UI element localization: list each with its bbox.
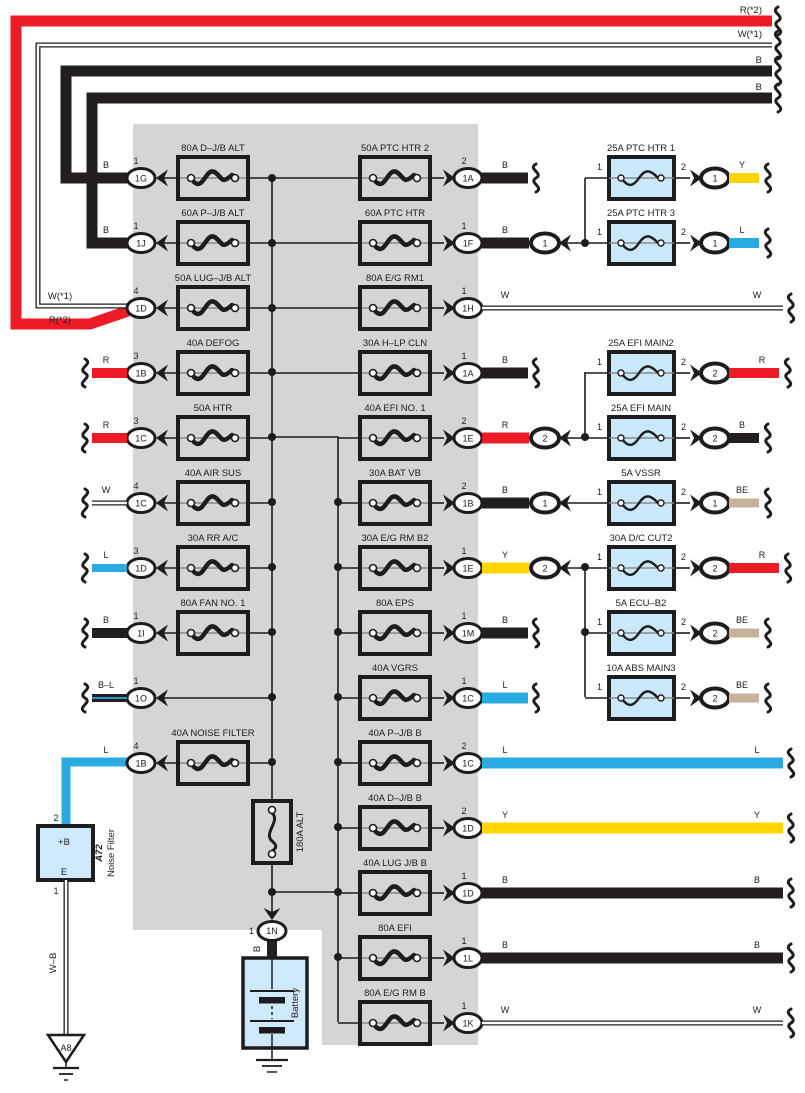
connector-code: 1	[712, 238, 717, 248]
pin-number: 1	[597, 422, 602, 432]
pin-number: 1	[133, 611, 138, 621]
wire-color-label: B	[103, 160, 109, 170]
continuation-brace-icon	[788, 879, 793, 907]
fuse-label: 40A AIR SUS	[185, 468, 242, 479]
continuation-brace-icon	[82, 684, 87, 712]
continuation-brace-icon	[775, 57, 780, 85]
wire-color-label: W(*1)	[48, 291, 72, 302]
fuse-label: 25A EFI MAIN2	[608, 338, 673, 349]
connector-code: 2	[712, 433, 717, 443]
fuse-label: 50A LUG–J/B ALT	[175, 273, 252, 284]
wire-color-label: W–B	[48, 953, 59, 974]
wire-color-label: B	[502, 160, 508, 170]
junction-dot	[268, 304, 276, 312]
connector-code: 1B	[135, 758, 146, 768]
connector-code: 1E	[462, 433, 473, 443]
connector-code: 1A	[462, 368, 473, 378]
right-fuse-6: 15A ECU–B222BE	[585, 598, 771, 654]
connector-code: 1B	[135, 368, 146, 378]
wire-color-label: B	[756, 55, 762, 66]
wire-color-label: W	[753, 290, 762, 300]
pin-number: 1	[597, 162, 602, 172]
junction-dot	[334, 823, 342, 831]
continuation-brace-icon	[765, 229, 770, 257]
wire-color-label: BE	[736, 485, 748, 495]
pin-number: 2	[681, 162, 686, 172]
continuation-brace-icon	[82, 359, 87, 387]
noise-filter-group: 2 +B E 1 A72 Noise Filter W–B A8	[38, 762, 128, 1080]
wire-color-label: W	[753, 1005, 762, 1015]
right-fuse-rows: 125A PTC HTR 121Y125A PTC HTR 321L125A E…	[585, 143, 791, 719]
junction-dot	[268, 368, 276, 376]
connector-code: 2	[712, 628, 717, 638]
continuation-brace-icon	[82, 554, 87, 582]
continuation-brace-icon	[785, 359, 790, 387]
continuation-brace-icon	[765, 424, 770, 452]
pin-number: 1	[461, 611, 466, 621]
wire-color-label: R(*2)	[740, 5, 762, 16]
wire-color-label: R	[103, 355, 110, 365]
terminal-label: E	[61, 867, 67, 878]
wire-color-label: B	[502, 225, 508, 235]
wire-color-label: B	[739, 420, 745, 430]
wire-color-label: R	[759, 355, 766, 365]
continuation-brace-icon	[533, 359, 538, 387]
right-fuse-0: 125A PTC HTR 121Y	[585, 143, 771, 199]
continuation-brace-icon	[533, 684, 538, 712]
fusible-link-icon	[609, 547, 674, 589]
junction-dot	[334, 888, 342, 896]
connector-code: 2	[712, 368, 717, 378]
connector-code: 2	[712, 693, 717, 703]
junction-dot	[268, 628, 276, 636]
wire-color-label: L	[739, 225, 744, 235]
right-fuse-3: 125A EFI MAIN22B	[585, 403, 771, 459]
wire-color-label: BE	[736, 680, 748, 690]
fuse-label: 40A VGRS	[372, 663, 418, 674]
wire-color-label: BE	[736, 615, 748, 625]
fusible-link-icon	[609, 157, 674, 199]
wire-color-label: R	[759, 550, 766, 560]
pin-number: 3	[133, 416, 138, 426]
connector-code: 1I	[137, 628, 145, 638]
connector-code: 1O	[135, 693, 147, 703]
connector-code: 1C	[462, 758, 474, 768]
connector-code: 1H	[462, 303, 474, 313]
ground-icon	[256, 1048, 288, 1072]
continuation-brace-icon	[785, 554, 790, 582]
fuse-label: 80A FAN NO. 1	[181, 598, 246, 609]
connector-code: 1A	[462, 173, 473, 183]
pin-number: 1	[461, 221, 466, 231]
pin-number: 2	[681, 487, 686, 497]
fuse-label: 40A EFI NO. 1	[364, 403, 425, 414]
fusible-link-icon	[609, 417, 674, 459]
continuation-brace-icon	[82, 489, 87, 517]
fuse-label: 40A DEFOG	[187, 338, 240, 349]
junction-dot	[268, 239, 276, 247]
junction-dot	[268, 174, 276, 182]
pin-number: 1	[461, 546, 466, 556]
wire-color-label: L	[502, 745, 507, 755]
junction-dot	[334, 953, 342, 961]
fuse-label: 5A ECU–B2	[616, 598, 667, 609]
connector-code: 1D	[462, 823, 474, 833]
relay-block-background	[133, 124, 478, 930]
pin-number: 2	[681, 617, 686, 627]
pin-number: 1	[597, 552, 602, 562]
fuse-label: 40A P–J/B B	[368, 728, 421, 739]
fuse-label: 60A P–J/B ALT	[181, 208, 244, 219]
pin-number: 1	[461, 286, 466, 296]
wire-color-label: L	[103, 550, 108, 560]
fuse-label: 80A EPS	[376, 598, 414, 609]
battery-group: 1N 1 B Battery	[243, 908, 307, 1072]
continuation-brace-icon	[533, 164, 538, 192]
pin-number: 1	[597, 682, 602, 692]
connector-code: 2	[542, 433, 547, 443]
pin-number: 2	[461, 156, 466, 166]
continuation-brace-icon	[788, 294, 793, 322]
wire-color-label: B	[754, 940, 760, 950]
fusible-link-icon	[609, 677, 674, 719]
connector-code: 1M	[462, 628, 475, 638]
wire-color-label: B	[502, 355, 508, 365]
fuse-label: 40A LUG J/B B	[363, 858, 427, 869]
fuse-label: 25A PTC HTR 3	[607, 208, 675, 219]
pin-number: 3	[133, 546, 138, 556]
continuation-brace-icon	[82, 424, 87, 452]
fuse-label: 40A D–J/B B	[368, 793, 422, 804]
wire-color-label: W	[501, 290, 510, 300]
fuse-label: 60A PTC HTR	[365, 208, 425, 219]
junction-dot	[268, 888, 276, 896]
connector-code: 1	[542, 498, 547, 508]
continuation-brace-icon	[533, 619, 538, 647]
fusible-link-icon	[609, 222, 674, 264]
junction-dot	[334, 693, 342, 701]
pin-number: 1	[461, 351, 466, 361]
continuation-brace-icon	[788, 944, 793, 972]
connector-code: 1J	[136, 238, 146, 248]
fuse-label: 80A E/G RM B	[364, 988, 426, 999]
connector-code: 1	[712, 498, 717, 508]
continuation-brace-icon	[82, 619, 87, 647]
pin-number: 1	[597, 487, 602, 497]
continuation-brace-icon	[765, 684, 770, 712]
battery-label: Battery	[290, 988, 301, 1018]
wire-color-label: B	[252, 946, 263, 952]
fuse-label: 80A D–J/B ALT	[181, 143, 245, 154]
right-fuse-7: 110A ABS MAIN322BE	[585, 663, 771, 719]
junction-dot	[581, 239, 589, 247]
wire-color-label: Y	[739, 160, 745, 170]
pin-number: 1	[249, 926, 254, 936]
pin-number: 1	[461, 1001, 466, 1011]
connector-code: 1C	[135, 498, 147, 508]
connector-code: 1D	[462, 888, 474, 898]
fusible-link-icon	[609, 612, 674, 654]
junction-dot	[334, 758, 342, 766]
continuation-brace-icon	[765, 164, 770, 192]
pin-number: 2	[53, 813, 58, 823]
right-fuse-4: 15A VSSR21BE	[585, 468, 771, 524]
ground-code: A8	[60, 1043, 71, 1053]
wire-color-label: B	[502, 940, 508, 950]
wire-color-label: L	[502, 680, 507, 690]
fuse-label: 30A E/G RM B2	[361, 533, 428, 544]
junction-dot	[581, 563, 589, 571]
junction-dot	[334, 628, 342, 636]
pin-number: 1	[461, 676, 466, 686]
wire-color-label: B–L	[98, 680, 114, 690]
pin-number: 2	[681, 682, 686, 692]
junction-dot	[581, 628, 589, 636]
pin-number: 1	[597, 357, 602, 367]
pin-number: 2	[461, 741, 466, 751]
fuse-label: 80A E/G RM1	[366, 273, 424, 284]
continuation-brace-icon	[765, 619, 770, 647]
fuse-label: 10A ABS MAIN3	[606, 663, 675, 674]
right-fuse-2: 125A EFI MAIN222R	[585, 338, 791, 394]
component-code: A72	[94, 844, 105, 863]
fuse-label: 30A BAT VB	[369, 468, 421, 479]
pin-number: 1	[133, 156, 138, 166]
continuation-brace-icon	[788, 814, 793, 842]
pin-number: 4	[133, 481, 138, 491]
fuse-label: 30A RR A/C	[188, 533, 239, 544]
pin-number: 2	[461, 416, 466, 426]
connector-code: 1L	[463, 953, 473, 963]
continuation-brace-icon	[765, 489, 770, 517]
junction-dot	[268, 563, 276, 571]
wire-color-label: W	[102, 485, 111, 495]
pin-number: 3	[133, 351, 138, 361]
pin-number: 1	[133, 221, 138, 231]
pin-number: 1	[53, 886, 58, 896]
connector-code: 1G	[135, 173, 147, 183]
connector-code: 2	[542, 563, 547, 573]
fusible-link-icon	[609, 482, 674, 524]
connector-code: 1D	[135, 303, 147, 313]
pin-number: 4	[133, 286, 138, 296]
pin-number: 1	[133, 676, 138, 686]
connector-code: 1C	[135, 433, 147, 443]
wire-color-label: Y	[502, 550, 508, 560]
wire-color-label: B	[103, 225, 109, 235]
junction-dot	[334, 498, 342, 506]
pin-number: 2	[681, 357, 686, 367]
connector-code: 1E	[462, 563, 473, 573]
pin-number: 2	[681, 552, 686, 562]
wire-color-label: B	[502, 875, 508, 885]
wire-color-label: B	[502, 485, 508, 495]
connector-code: 1	[712, 173, 717, 183]
fuse-label: 40A NOISE FILTER	[171, 728, 254, 739]
pin-number: 2	[461, 481, 466, 491]
connector-code: 1	[542, 238, 547, 248]
pin-number: 1	[597, 617, 602, 627]
connector-code: 1N	[266, 926, 278, 936]
wire-color-label: B	[756, 82, 762, 93]
connector-code: 1B	[462, 498, 473, 508]
wire-color-label: L	[754, 745, 759, 755]
pin-number: 4	[133, 741, 138, 751]
junction-dot	[268, 498, 276, 506]
component-name: Noise Filter	[106, 829, 117, 877]
fuse-label: 30A D/C CUT2	[610, 533, 673, 544]
pin-number: 1	[597, 227, 602, 237]
continuation-brace-icon	[788, 1009, 793, 1037]
wire-color-label: R	[502, 420, 509, 430]
fuse-label: 30A H–LP CLN	[363, 338, 427, 349]
right-fuse-1: 125A PTC HTR 321L	[585, 208, 771, 264]
pin-number: 2	[681, 227, 686, 237]
pin-number: 2	[461, 806, 466, 816]
fuse-label: 80A EFI	[378, 923, 412, 934]
junction-dot	[268, 693, 276, 701]
junction-dot	[581, 433, 589, 441]
fuse-label: 50A PTC HTR 2	[361, 143, 429, 154]
connector-code: 2	[712, 563, 717, 573]
connector-code: 1K	[462, 1018, 473, 1028]
right-fuse-5: 130A D/C CUT222R	[585, 533, 791, 589]
wiring-diagram-page: R(*2) W(*1) B B W(*1) R(*2) 180A ALT 1N …	[0, 0, 805, 1088]
wire-color-label: R	[103, 420, 110, 430]
pin-number: 2	[681, 422, 686, 432]
pin-number: 1	[461, 936, 466, 946]
continuation-brace-icon	[788, 749, 793, 777]
wire-color-label: W	[501, 1005, 510, 1015]
wire-color-label: B	[502, 615, 508, 625]
connector-code: 1C	[462, 693, 474, 703]
wire-color-label: Y	[754, 810, 760, 820]
fusible-link-icon	[609, 352, 674, 394]
wire-color-label: L	[103, 745, 108, 755]
wire-color-label: R(*2)	[49, 315, 71, 326]
junction-dot	[268, 433, 276, 441]
wire-color-label: B	[103, 615, 109, 625]
wire-color-label: W(*1)	[738, 29, 762, 40]
fuse-label: 25A PTC HTR 1	[607, 143, 675, 154]
junction-dot	[268, 758, 276, 766]
junction-dot	[334, 563, 342, 571]
ground-icon	[53, 1062, 79, 1080]
power-source-wiring-diagram: R(*2) W(*1) B B W(*1) R(*2) 180A ALT 1N …	[0, 0, 805, 1088]
connector-code: 1F	[463, 238, 474, 248]
terminal-label: +B	[58, 837, 70, 848]
fuse-label: 25A EFI MAIN	[611, 403, 671, 414]
fuse-label: 5A VSSR	[621, 468, 661, 479]
continuation-brace-icon	[775, 84, 780, 112]
pin-number: 1	[461, 871, 466, 881]
wire-color-label: B	[754, 875, 760, 885]
noise-filter-feed-wire	[66, 762, 128, 826]
fuse-label: 50A HTR	[194, 403, 233, 414]
connector-code: 1D	[135, 563, 147, 573]
wire-color-label: Y	[502, 810, 508, 820]
fuse-label: 180A ALT	[295, 812, 306, 853]
